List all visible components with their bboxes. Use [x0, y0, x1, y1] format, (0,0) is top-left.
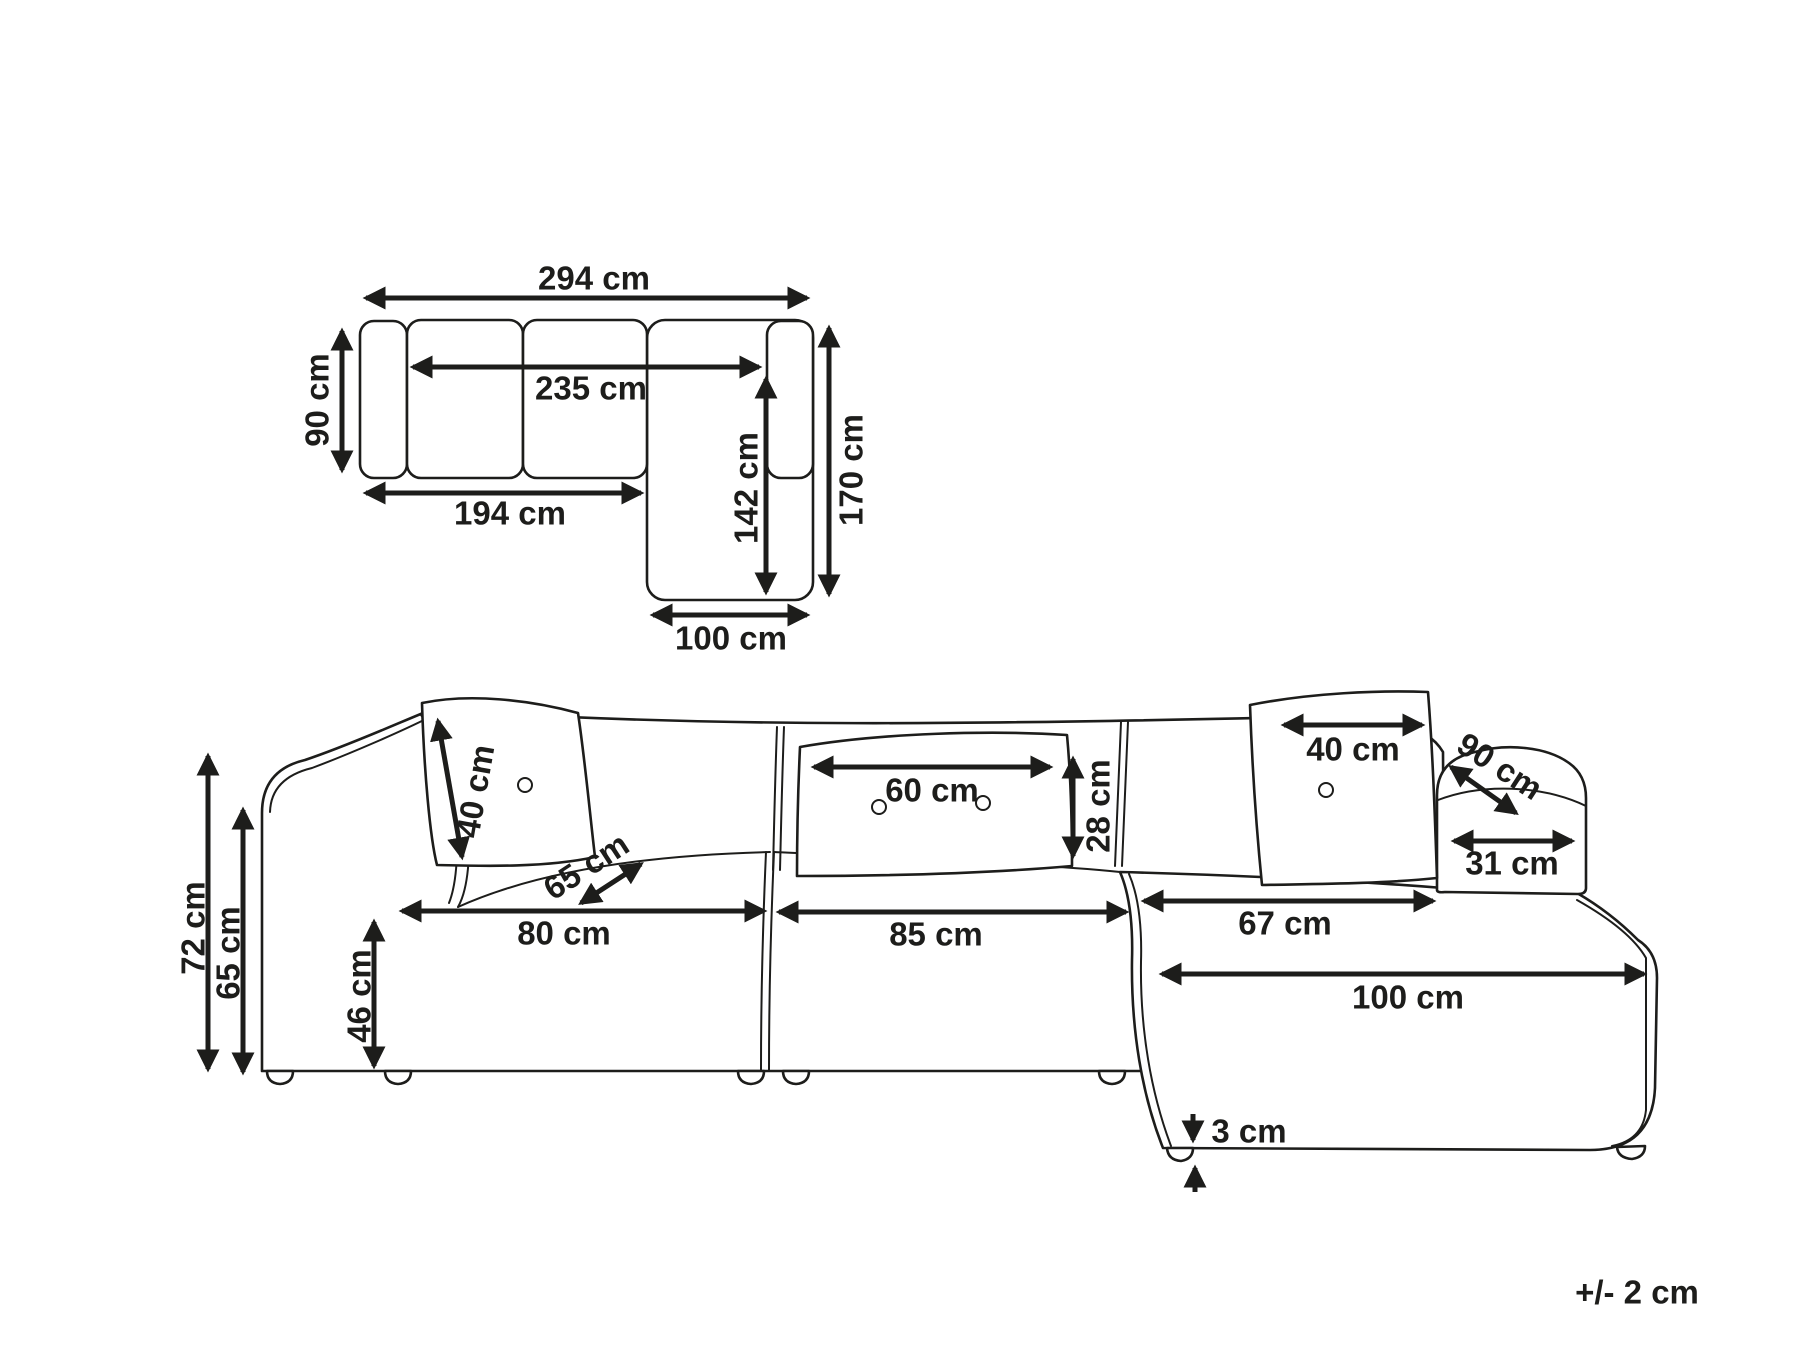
plan-chaise-width-label: 100 cm — [675, 620, 787, 657]
foot-2 — [385, 1071, 411, 1084]
foot-4 — [783, 1071, 809, 1084]
sofa-front-view: 72 cm 65 cm 46 cm 40 cm 65 cm 80 cm 60 c… — [175, 691, 1658, 1192]
foot-3 — [738, 1071, 764, 1084]
armrest-top-width-label: 31 cm — [1465, 845, 1559, 882]
foot-5 — [1099, 1071, 1125, 1084]
right-cushion-size-label: 40 cm — [1306, 731, 1400, 768]
left-seat-width-label: 80 cm — [517, 915, 611, 952]
total-height-label: 72 cm — [175, 881, 212, 975]
plan-seat-span-label: 235 cm — [535, 370, 647, 407]
chaise-foot-right — [1617, 1146, 1645, 1159]
right-back-cushion — [1250, 691, 1437, 885]
tolerance-note: +/- 2 cm — [1575, 1274, 1699, 1311]
leg-height-label: 3 cm — [1211, 1113, 1286, 1150]
seat-height-label: 46 cm — [341, 949, 378, 1043]
plan-seat-module-1 — [407, 320, 523, 478]
plan-right-armrest — [767, 321, 813, 478]
chaise-seat-width-label: 67 cm — [1238, 905, 1332, 942]
dimension-diagram-page: 294 cm 235 cm 90 cm 194 cm 142 cm 170 cm… — [0, 0, 1800, 1350]
left-cushion-button — [518, 778, 532, 792]
plan-left-armrest — [360, 321, 407, 478]
plan-total-width-label: 294 cm — [538, 260, 650, 297]
chaise-foot-left — [1167, 1148, 1193, 1161]
lumbar-height-label: 28 cm — [1080, 759, 1117, 853]
middle-seat-width-label: 85 cm — [889, 916, 983, 953]
foot-1 — [267, 1071, 293, 1084]
chaise-total-width-label: 100 cm — [1352, 979, 1464, 1016]
sofa-top-view: 294 cm 235 cm 90 cm 194 cm 142 cm 170 cm… — [299, 260, 870, 657]
right-cushion-button — [1319, 783, 1333, 797]
armrest-height-label: 65 cm — [210, 906, 247, 1000]
plan-left-length-label: 194 cm — [454, 495, 566, 532]
plan-chaise-depth-label: 142 cm — [728, 432, 765, 544]
sofa-dimension-drawing: 294 cm 235 cm 90 cm 194 cm 142 cm 170 cm… — [0, 0, 1800, 1350]
plan-total-depth-label: 170 cm — [833, 414, 870, 526]
lumbar-width-label: 60 cm — [885, 772, 979, 809]
middle-cushion-button-left — [872, 800, 886, 814]
plan-depth-label: 90 cm — [299, 353, 336, 447]
